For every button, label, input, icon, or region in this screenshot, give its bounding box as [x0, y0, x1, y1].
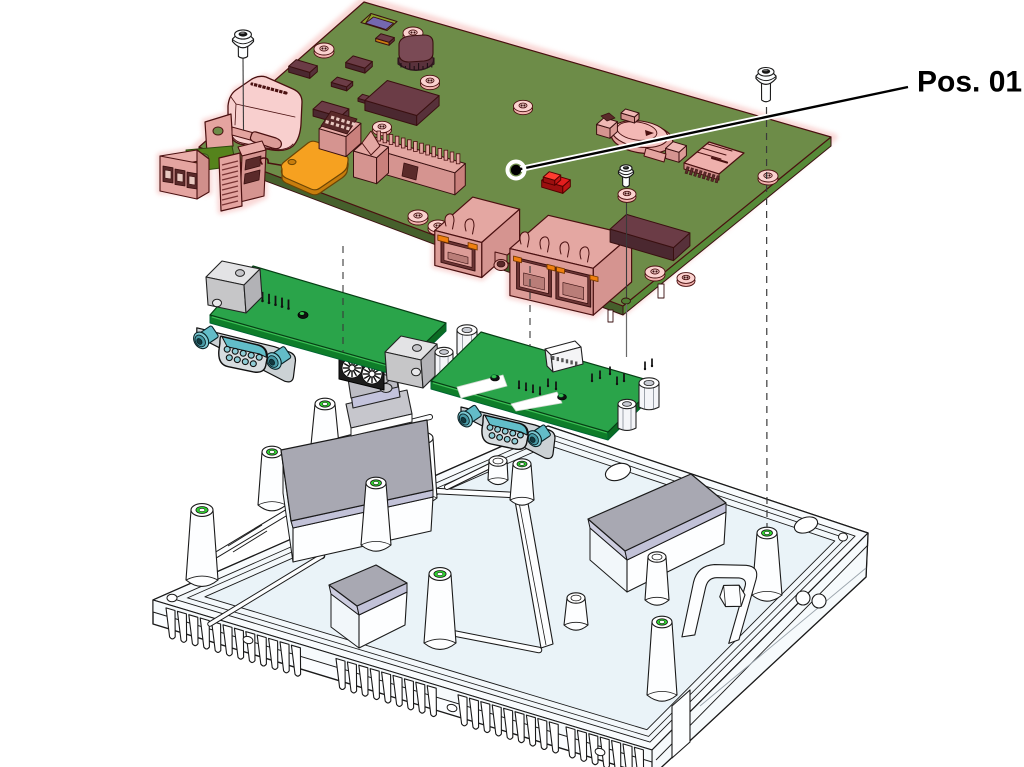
svg-text:Pos. 01: Pos. 01 — [917, 66, 1022, 99]
